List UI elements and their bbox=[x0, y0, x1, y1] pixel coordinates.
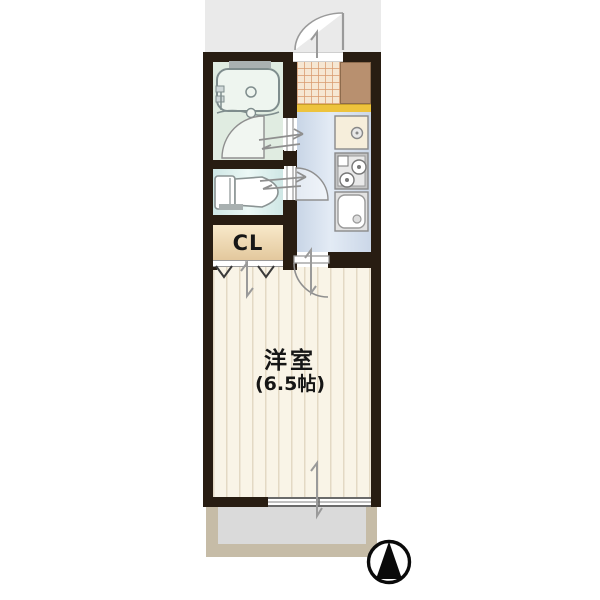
wall-right bbox=[371, 52, 381, 507]
wall-kitchen-room bbox=[328, 252, 381, 268]
kitchen-door-opening bbox=[296, 252, 328, 268]
main-room-name: 洋室 bbox=[215, 348, 365, 374]
main-room-label: 洋室 (6.5帖) bbox=[215, 348, 365, 396]
wall-bath-kitchen-lower bbox=[283, 200, 297, 270]
wall-bottom-right bbox=[371, 497, 381, 507]
bathroom-door-panel bbox=[284, 118, 296, 151]
toilet-floor bbox=[213, 169, 283, 215]
balcony-window bbox=[268, 497, 371, 507]
kitchen-floor bbox=[297, 112, 371, 252]
wall-bath-toilet bbox=[203, 160, 297, 169]
balcony-floor bbox=[218, 507, 366, 544]
shoe-cabinet bbox=[340, 62, 371, 104]
bathroom-floor bbox=[213, 62, 283, 160]
floorplan-canvas: CL 洋室 (6.5帖) bbox=[0, 0, 600, 600]
closet-label: CL bbox=[213, 228, 283, 258]
main-room-size: (6.5帖) bbox=[215, 374, 365, 396]
toilet-door-panel bbox=[284, 166, 296, 200]
wall-bottom-left bbox=[203, 497, 268, 507]
wall-toilet-closet bbox=[203, 215, 297, 225]
closet-opening bbox=[213, 260, 283, 267]
wall-top-left bbox=[203, 52, 293, 62]
entrance-opening bbox=[293, 52, 343, 62]
wall-left bbox=[203, 52, 213, 507]
entrance-outside-area bbox=[205, 0, 381, 53]
genkan-tile-floor bbox=[297, 62, 340, 104]
